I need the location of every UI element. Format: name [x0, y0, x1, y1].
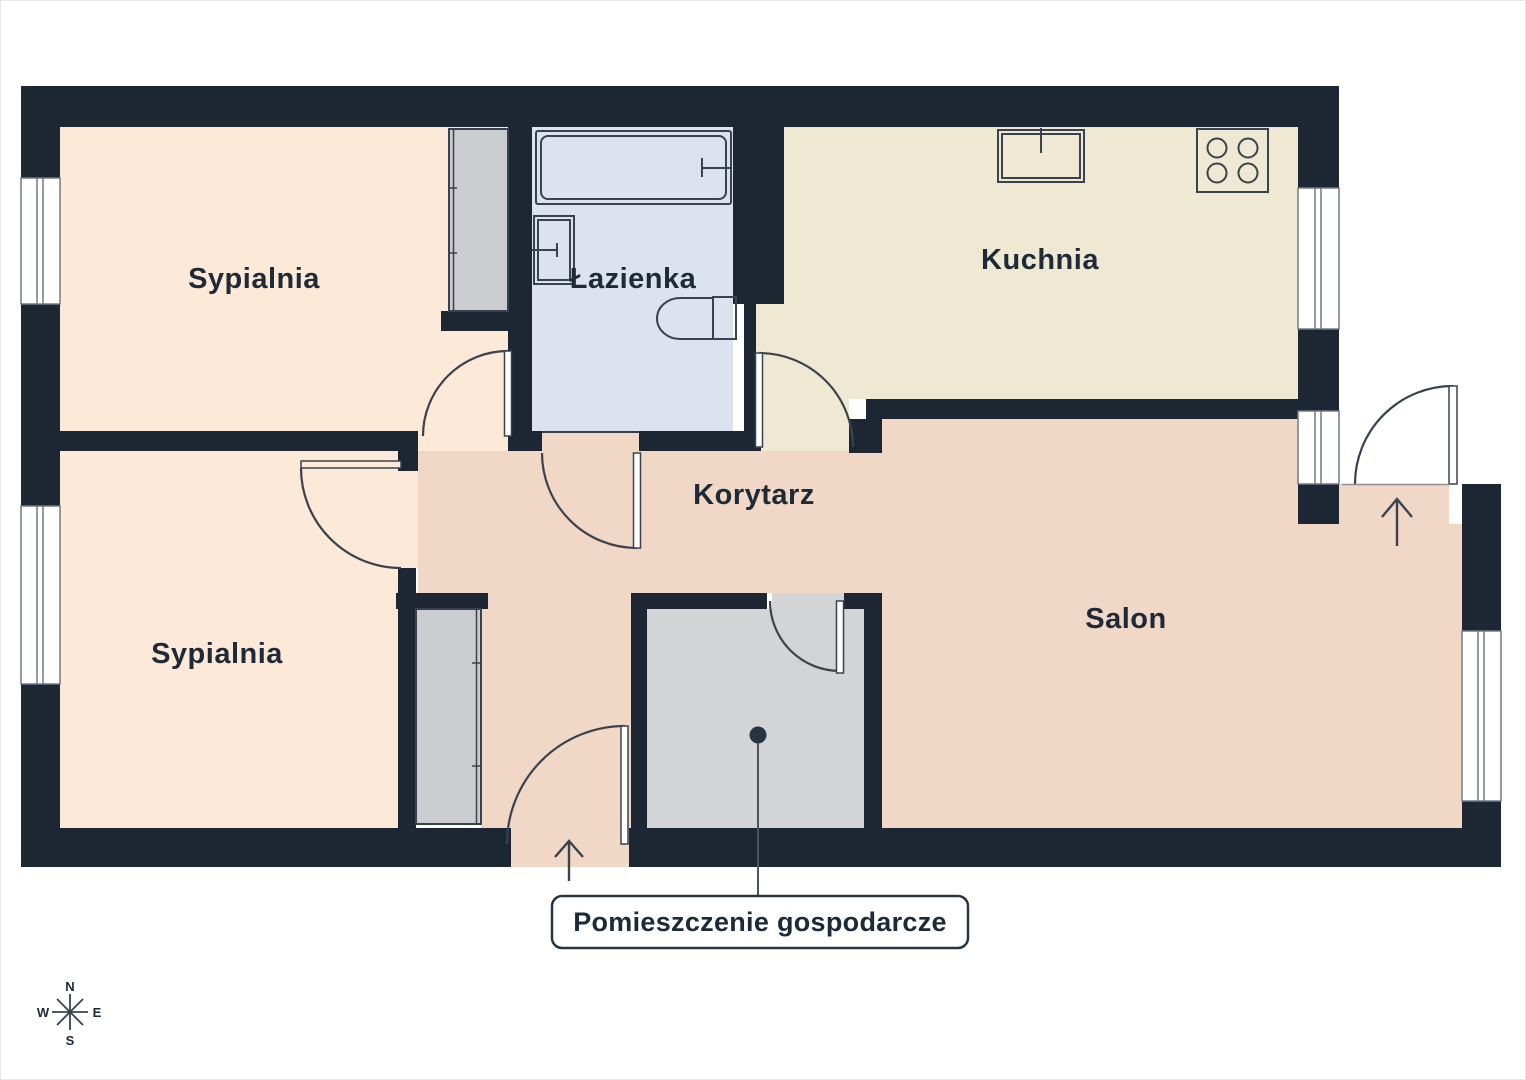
room-label-living-room: Salon: [1085, 603, 1166, 635]
room-label-bedroom-top: Sypialnia: [188, 263, 320, 295]
bedroom-bottom-door-floor: [398, 471, 418, 568]
compass-north: N: [65, 979, 74, 994]
wall-utility-top-left: [631, 593, 767, 609]
room-label-kitchen: Kuchnia: [981, 244, 1099, 276]
bathroom-door-floor: [542, 431, 639, 451]
room-floor-corridor-lower: [481, 593, 631, 828]
compass-rose: N S W E: [37, 979, 102, 1048]
wardrobe-bedroom-top-icon: [449, 129, 508, 311]
window-kitchen-small: [1298, 411, 1339, 484]
wall-stub-wardrobe: [441, 311, 508, 331]
room-floor-living-room-right: [1298, 524, 1462, 828]
wall-kitchen-bottom: [866, 399, 1298, 419]
wardrobe-corridor-icon: [416, 609, 481, 824]
wall-bathroom-right-lower: [744, 304, 756, 451]
bedroom-top-door-floor: [418, 431, 508, 451]
compass-star-icon: [52, 994, 88, 1030]
wall-step-kitchen-door: [849, 419, 882, 453]
window-living-room: [1462, 631, 1501, 801]
wall-stub-corridor: [396, 593, 488, 609]
wall-bottom-left: [21, 828, 511, 867]
window-bedroom-bottom: [21, 506, 60, 684]
window-bedroom-top: [21, 178, 60, 304]
kitchen-door-floor: [756, 399, 849, 453]
wall-top: [21, 86, 1339, 127]
callout-label: Pomieszczenie gospodarcze: [573, 907, 947, 937]
wall-utility-right: [864, 593, 882, 862]
compass-west: W: [37, 1005, 50, 1020]
compass-east: E: [93, 1005, 102, 1020]
room-label-corridor: Korytarz: [693, 479, 815, 511]
stove-icon: [1197, 129, 1268, 192]
wall-between-bedrooms: [21, 431, 398, 451]
callout-dot: [750, 727, 767, 744]
room-floor-utility: [647, 609, 864, 828]
wall-bathroom-right-upper: [733, 127, 784, 304]
wall-bathroom-bottom-left: [508, 431, 542, 451]
room-floor-corridor: [418, 451, 882, 593]
compass-south: S: [66, 1033, 75, 1048]
room-label-bathroom: Łazienka: [570, 263, 697, 295]
window-kitchen: [1298, 188, 1339, 329]
floor-plan: Sypialnia Łazienka Kuchnia Korytarz Salo…: [1, 1, 1526, 1080]
wall-bottom-right: [629, 828, 1501, 867]
wall-bathroom-bottom-right: [639, 431, 761, 451]
room-label-bedroom-bottom: Sypialnia: [151, 638, 283, 670]
room-floor-kitchen-lower: [756, 304, 1298, 399]
floor-plan-page: Sypialnia Łazienka Kuchnia Korytarz Salo…: [0, 0, 1526, 1080]
door-entry-main: [1342, 386, 1457, 485]
wall-utility-left: [631, 593, 647, 862]
utility-door-floor: [772, 593, 844, 609]
